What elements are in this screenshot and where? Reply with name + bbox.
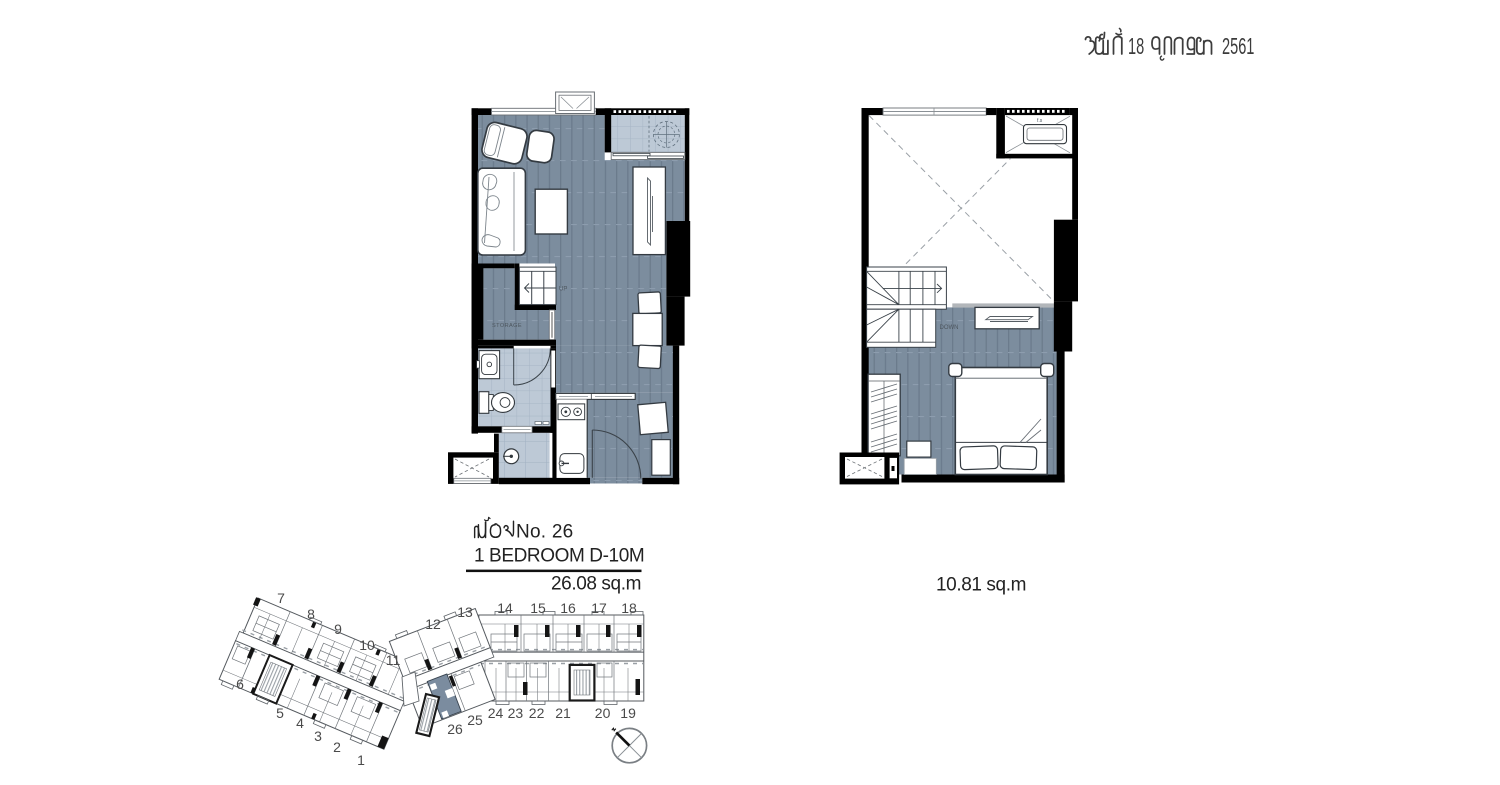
svg-text:5: 5 xyxy=(276,705,284,721)
svg-text:7: 7 xyxy=(277,590,285,606)
svg-text:26: 26 xyxy=(447,721,463,737)
svg-text:4: 4 xyxy=(296,715,304,731)
svg-text:18: 18 xyxy=(1128,34,1144,60)
svg-text:17: 17 xyxy=(591,600,607,616)
svg-text:14: 14 xyxy=(497,600,513,616)
svg-text:2561: 2561 xyxy=(1222,34,1254,60)
svg-text:DOWN: DOWN xyxy=(940,325,959,331)
svg-text:13: 13 xyxy=(457,604,473,620)
svg-text:21: 21 xyxy=(555,705,571,721)
svg-text:No. 26: No. 26 xyxy=(516,522,573,543)
svg-text:10: 10 xyxy=(359,637,375,653)
svg-text:23: 23 xyxy=(508,705,524,721)
svg-text:10.81 sq.m: 10.81 sq.m xyxy=(936,575,1026,596)
svg-text:f.s: f.s xyxy=(1037,118,1043,124)
svg-text:25: 25 xyxy=(467,712,483,728)
svg-text:1 BEDROOM D-10M: 1 BEDROOM D-10M xyxy=(474,546,644,567)
svg-text:1: 1 xyxy=(357,752,365,768)
svg-text:26.08 sq.m: 26.08 sq.m xyxy=(551,574,641,595)
svg-text:11: 11 xyxy=(386,652,401,668)
svg-text:16: 16 xyxy=(560,600,576,616)
svg-text:6: 6 xyxy=(236,676,244,692)
svg-text:8: 8 xyxy=(307,606,315,622)
svg-text:12: 12 xyxy=(425,616,441,632)
svg-text:3: 3 xyxy=(314,728,322,744)
svg-text:22: 22 xyxy=(529,705,545,721)
svg-text:STORAGE: STORAGE xyxy=(492,323,522,329)
svg-text:19: 19 xyxy=(620,705,636,721)
svg-text:9: 9 xyxy=(334,621,342,637)
svg-text:18: 18 xyxy=(621,600,637,616)
svg-text:24: 24 xyxy=(488,705,504,721)
svg-text:15: 15 xyxy=(530,600,546,616)
svg-text:2: 2 xyxy=(333,739,341,755)
svg-text:20: 20 xyxy=(595,705,611,721)
svg-text:UP: UP xyxy=(559,287,567,293)
